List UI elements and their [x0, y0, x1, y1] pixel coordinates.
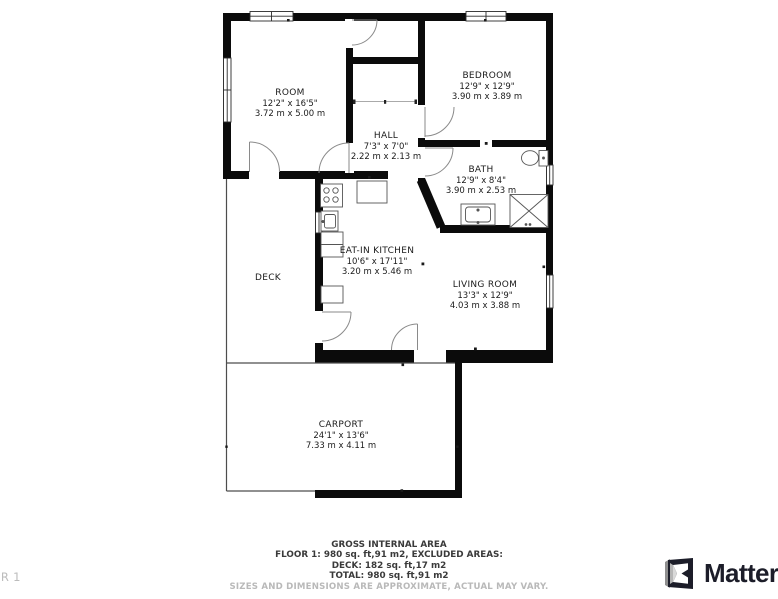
wall-closet-bottom: [346, 57, 425, 64]
wall-carport-right: [455, 360, 462, 497]
door-hall-to-room: [319, 143, 349, 173]
area-summary-total: TOTAL: 980 sq. ft,91 m2: [0, 571, 778, 581]
wall-bath-diagonal: [421, 180, 441, 227]
room-dims-m: 3.90 m x 3.89 m: [452, 92, 522, 103]
kitchen-sink-icon: [321, 211, 338, 231]
stove-icon: [321, 184, 343, 207]
room-dims-ft: 12'2" x 16'5": [255, 99, 325, 110]
room-name: LIVING ROOM: [450, 280, 520, 291]
window-room-top: [250, 12, 293, 22]
room-label-bedroom: BEDROOM 12'9" x 12'9" 3.90 m x 3.89 m: [452, 71, 522, 103]
bath-vanity-icon: [461, 204, 495, 225]
hall-boundary-line: [353, 100, 417, 105]
room-name: HALL: [351, 131, 421, 142]
room-dims-m: 4.03 m x 3.88 m: [450, 301, 520, 312]
window-bath-right: [547, 165, 554, 185]
area-summary-deck: DECK: 182 sq. ft,17 m2: [0, 561, 778, 571]
area-summary-title: GROSS INTERNAL AREA: [0, 540, 778, 550]
room-dims-ft: 24'1" x 13'6": [306, 431, 376, 442]
room-dims-ft: 10'6" x 17'11": [340, 257, 415, 268]
room-name: BEDROOM: [452, 71, 522, 82]
fridge-icon: [357, 181, 387, 203]
door-living-to-carport: [392, 324, 418, 350]
wall-room-bottom: [223, 171, 388, 179]
room-label-hall: HALL 7'3" x 7'0" 2.22 m x 2.13 m: [351, 131, 421, 163]
room-name: EAT-IN KITCHEN: [340, 246, 415, 257]
matterport-logo-icon: [664, 557, 695, 590]
room-name: ROOM: [255, 88, 325, 99]
room-label-carport: CARPORT 24'1" x 13'6" 7.33 m x 4.11 m: [306, 420, 376, 452]
disclaimer-text: SIZES AND DIMENSIONS ARE APPROXIMATE, AC…: [0, 582, 778, 592]
room-dims-ft: 12'9" x 12'9": [452, 82, 522, 93]
door-bedroom: [425, 107, 454, 137]
room-dims-m: 3.20 m x 5.46 m: [340, 267, 415, 278]
room-label-living-room: LIVING ROOM 13'3" x 12'9" 4.03 m x 3.88 …: [450, 280, 520, 312]
area-summary: GROSS INTERNAL AREA FLOOR 1: 980 sq. ft,…: [0, 540, 778, 592]
room-dims-ft: 7'3" x 7'0": [351, 142, 421, 153]
matterport-branding: Matterport: [664, 555, 778, 591]
room-label-deck: DECK: [255, 273, 281, 284]
room-label-kitchen: EAT-IN KITCHEN 10'6" x 17'11" 3.20 m x 5…: [340, 246, 415, 278]
floorplan-page: { "floorplan": { "floor_indicator": "FLO…: [0, 0, 778, 599]
room-name: DECK: [255, 273, 281, 284]
window-room-left: [224, 58, 232, 122]
floorplan-drawing: [0, 0, 778, 599]
room-dims-m: 2.22 m x 2.13 m: [351, 152, 421, 163]
window-living-right: [547, 275, 554, 308]
door-closet: [352, 20, 377, 45]
shower-icon: [510, 195, 548, 228]
matterport-wordmark: Matterport: [704, 558, 778, 589]
room-dims-ft: 13'3" x 12'9": [450, 291, 520, 302]
room-name: CARPORT: [306, 420, 376, 431]
floor-indicator: FLOOR 1: [0, 570, 21, 584]
room-label-bath: BATH 12'9" x 8'4" 3.90 m x 2.53 m: [446, 165, 516, 197]
room-name: BATH: [446, 165, 516, 176]
room-dims-m: 7.33 m x 4.11 m: [306, 441, 376, 452]
room-dims-m: 3.90 m x 2.53 m: [446, 186, 516, 197]
room-label-room: ROOM 12'2" x 16'5" 3.72 m x 5.00 m: [255, 88, 325, 120]
room-dims-ft: 12'9" x 8'4": [446, 176, 516, 187]
wall-carport-bottom: [315, 490, 462, 498]
room-dims-m: 3.72 m x 5.00 m: [255, 109, 325, 120]
area-summary-floor1: FLOOR 1: 980 sq. ft,91 m2, EXCLUDED AREA…: [0, 550, 778, 560]
door-kitchen-to-deck: [322, 312, 351, 341]
door-room-to-deck: [250, 142, 280, 172]
toilet-icon: [522, 151, 549, 167]
